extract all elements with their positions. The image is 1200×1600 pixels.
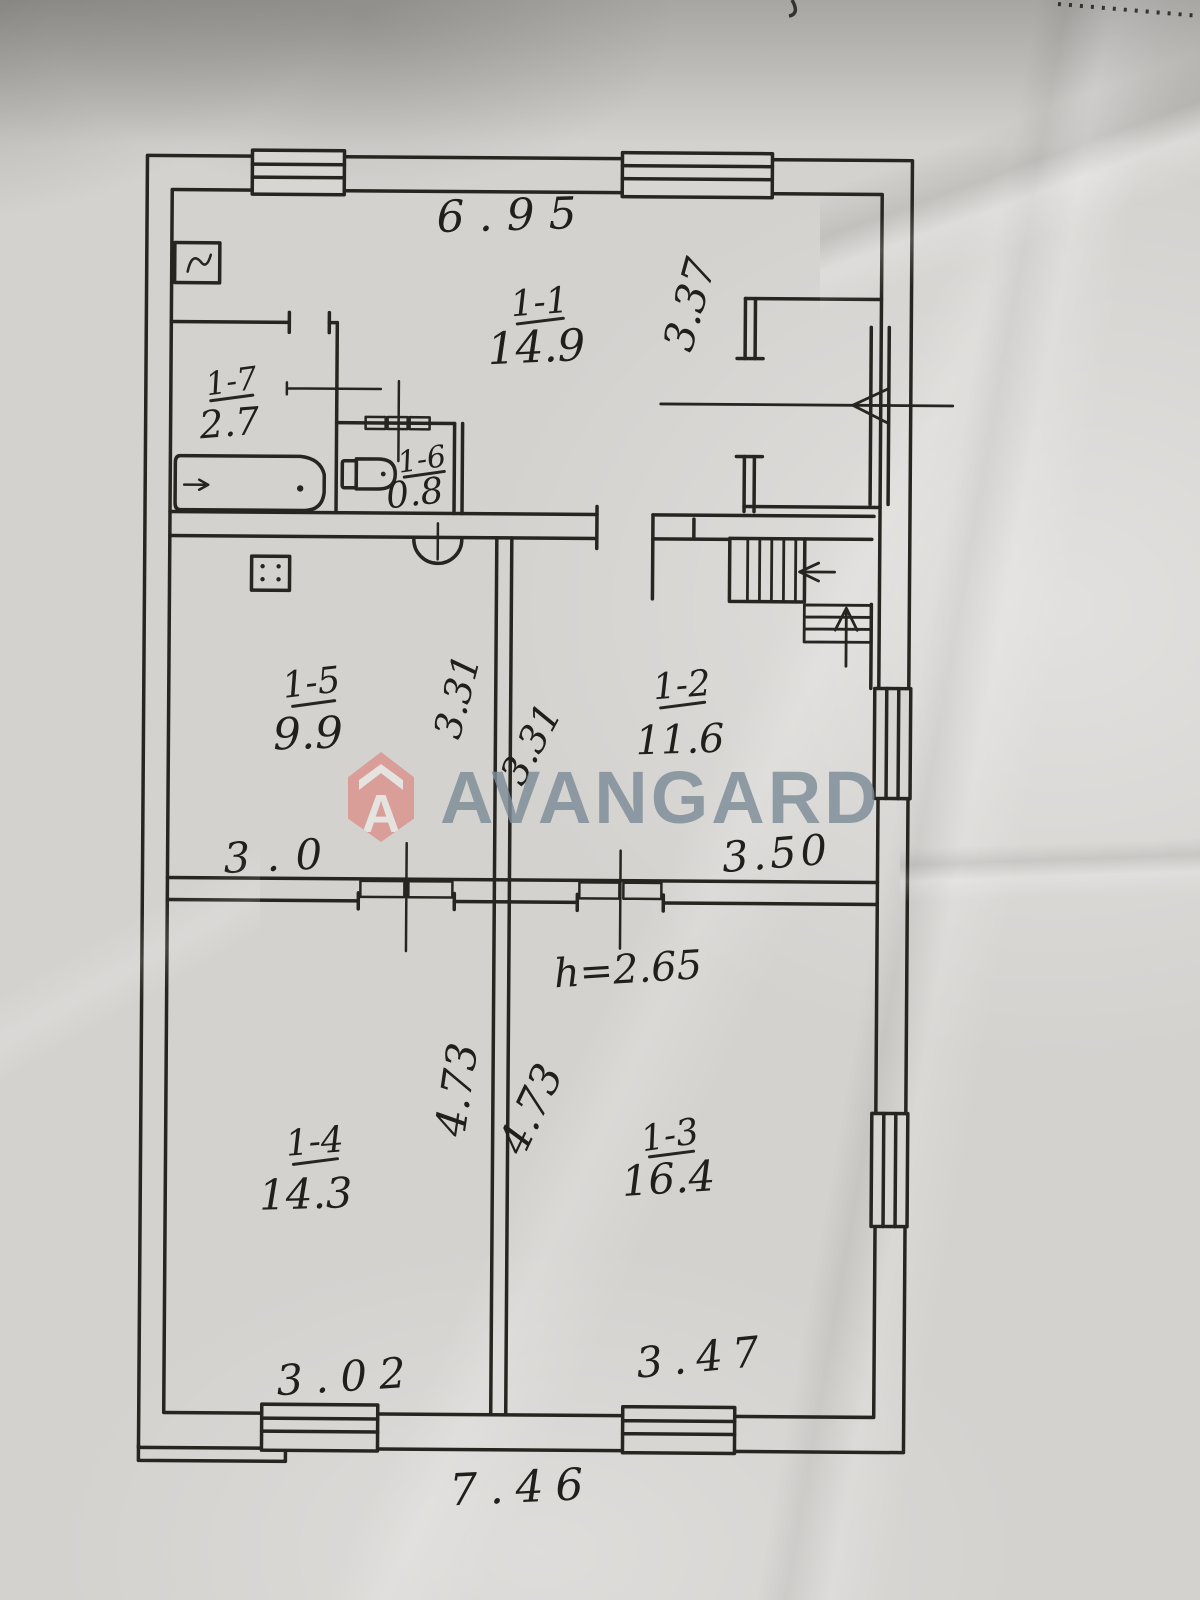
room-label-1-2: 1-2 11.6: [634, 662, 725, 765]
door-leaf-line: [652, 515, 653, 599]
porch-top-wall: [746, 299, 882, 300]
dimension-label: 3.47: [634, 1326, 772, 1388]
window-icon: [261, 1404, 377, 1451]
dimension-label: 3.02: [275, 1347, 419, 1405]
window-icon: [874, 688, 911, 798]
lintel-hatch: [408, 881, 452, 897]
dimension-label: 3.50: [720, 824, 833, 882]
boiler-icon: [175, 243, 220, 283]
lintel-hatch: [360, 881, 404, 897]
wall-segment: [171, 322, 337, 323]
room-area: 2.7: [197, 399, 263, 448]
porch-bottom-wall: [744, 507, 880, 508]
room-label-1-5: 1-5 9.9: [272, 659, 344, 761]
dimension-label: 3.31: [425, 650, 489, 743]
room-label-1-4: 1-4 14.3: [258, 1119, 354, 1221]
window-icon: [871, 1113, 908, 1226]
lintel-hatch: [579, 882, 619, 898]
wall-segment: [337, 423, 455, 424]
window-icon: [622, 1407, 734, 1454]
wall-segment: [491, 538, 512, 1415]
room-area: 11.6: [635, 716, 725, 764]
wall-segment: [170, 512, 874, 517]
room-label-1-6: 1-6 0.8: [384, 439, 449, 518]
room-area: 16.4: [620, 1151, 716, 1206]
window-icon: [622, 153, 772, 198]
room-area: 14.3: [258, 1168, 353, 1220]
door-swing-line: [406, 843, 407, 951]
door-arc-icon: [414, 523, 462, 563]
room-area: 14.9: [486, 320, 586, 375]
room-label-1-7: 1-7 2.7: [196, 358, 262, 448]
lintel-hatch: [623, 883, 661, 899]
door-jamb-tick: [736, 358, 763, 456]
wall-segment: [167, 900, 877, 905]
dimension-label: 4.73: [425, 1040, 487, 1141]
window-icon: [252, 150, 344, 195]
dotted-edge-artifact: [1058, 4, 1200, 16]
dimension-label: 3.31: [491, 696, 570, 791]
door-jamb-tick: [289, 312, 329, 332]
ceiling-height-label: h=2.65: [552, 942, 703, 997]
dimension-label: 7.46: [448, 1459, 596, 1517]
room-label-1-1: 1-1 14.9: [486, 279, 587, 376]
scan-artifacts: [789, 0, 1200, 16]
room-label-1-3: 1-3 16.4: [620, 1111, 717, 1207]
dimension-label: 3.37: [653, 253, 725, 356]
pen-mark-artifact: [789, 0, 795, 16]
staircase-icon: [729, 538, 872, 666]
dimension-labels: 6.95 3.37 3.31 3.31 3.0 3.50 h=2.65 4.73…: [218, 185, 838, 1519]
bathtub-icon: [175, 456, 324, 511]
door-swing-line: [620, 851, 621, 949]
stove-icon: [251, 556, 289, 590]
dimension-label: 6.95: [436, 188, 591, 243]
room-area: 9.9: [272, 708, 343, 761]
floor-plan-drawing: 6.95 3.37 3.31 3.31 3.0 3.50 h=2.65 4.73…: [0, 0, 1200, 1600]
scanned-floor-plan-photo: 6.95 3.37 3.31 3.31 3.0 3.50 h=2.65 4.73…: [0, 0, 1200, 1600]
dimension-label: 3.0: [222, 829, 339, 883]
wall-segment: [170, 536, 730, 540]
wall-segment: [336, 323, 337, 513]
dimension-label: 4.73: [488, 1056, 573, 1162]
door-line: [287, 382, 381, 395]
wall-segment: [454, 423, 463, 513]
room-area: 0.8: [384, 470, 446, 517]
